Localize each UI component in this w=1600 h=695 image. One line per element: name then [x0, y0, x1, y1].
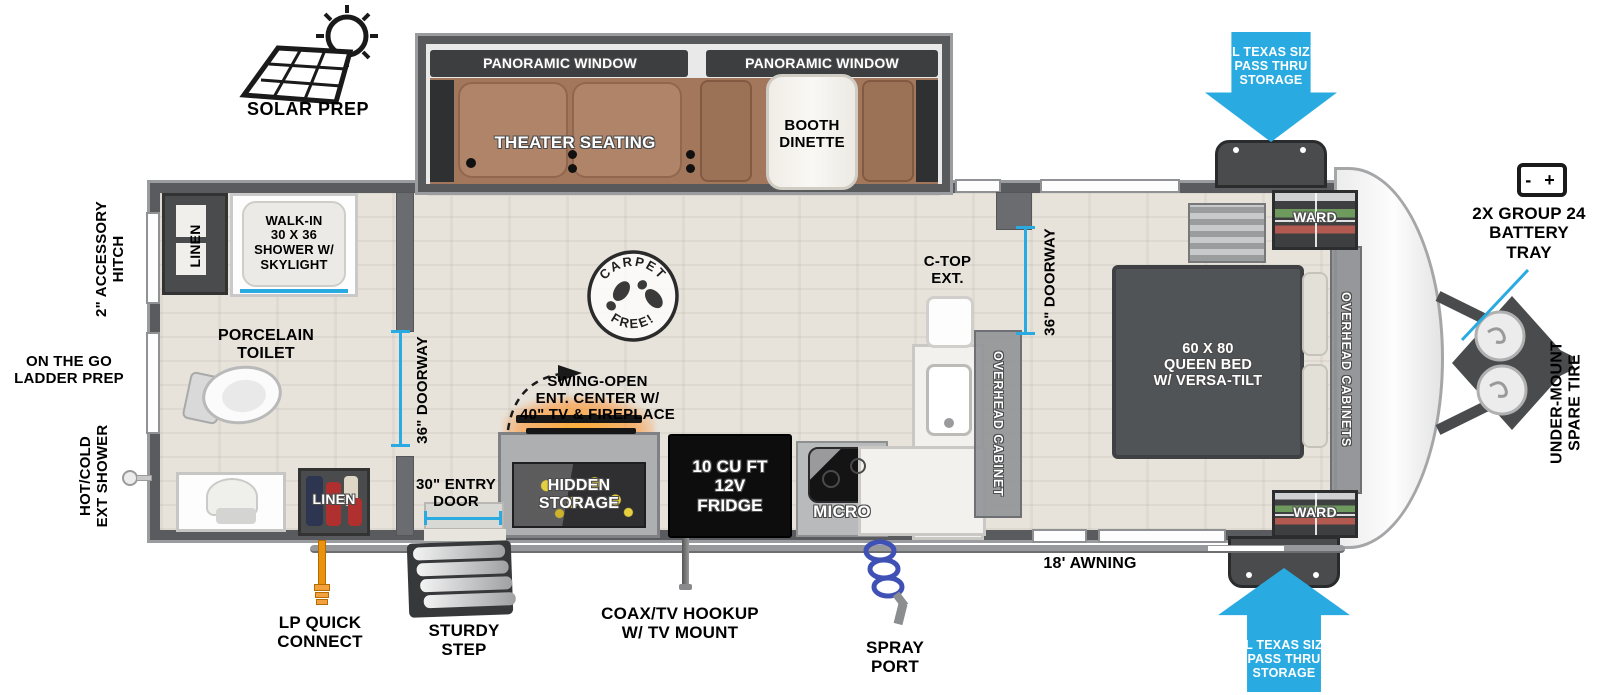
burner [822, 470, 840, 488]
ext-shower-label: HOT/COLD EXT SHOWER [73, 406, 117, 546]
bedroom-overhead-cabinets: OVERHEAD CABINETS [1330, 246, 1362, 494]
spray-port-coil [866, 542, 905, 624]
bed-dresser [1188, 203, 1266, 263]
floorplan-canvas: PANORAMIC WINDOW PANORAMIC WINDOW THEATE… [0, 0, 1600, 695]
shower-threshold [240, 289, 348, 293]
battery-tray-label: 2X GROUP 24 BATTERY TRAY [1458, 200, 1600, 266]
lp-connector [315, 592, 329, 598]
slideout-end-window [916, 80, 938, 182]
awning-label: 18' AWNING [1005, 553, 1175, 575]
step-tread [413, 544, 505, 560]
entry-door-label: 30" ENTRY DOOR [404, 474, 508, 514]
pass-thru-bottom-label: XL TEXAS SIZE PASS THRU STORAGE [1218, 630, 1350, 688]
booth-bench [700, 80, 752, 182]
coax-pole [682, 538, 689, 586]
step-tread [424, 592, 516, 608]
step-tread [416, 560, 508, 576]
bath-doorway-measure-line [399, 332, 402, 446]
under-mount-spare-tire-label: UNDER-MOUNT SPARE TIRE [1539, 298, 1594, 508]
micro-label: MICRO [798, 500, 886, 524]
vanity-base [216, 508, 256, 524]
kitchen-overhead-cabinet-label: OVERHEAD CABINET [991, 351, 1005, 497]
bath-doorway-label: 36" DOORWAY [408, 330, 438, 450]
entry-door-measure-line [424, 517, 502, 520]
booth-bench [862, 80, 914, 182]
battery-icon-text: - + [1525, 170, 1559, 190]
ladder-prep-label: ON THE GO LADDER PREP [0, 350, 138, 392]
rear-wall-window [146, 332, 160, 434]
battery-icon: - + [1517, 163, 1567, 197]
sturdy-step [407, 540, 514, 618]
awning-bar-segment [1208, 546, 1284, 551]
storage-box-latch [1246, 572, 1252, 578]
entry-door-measure-cap [424, 511, 427, 525]
solar-panel-icon [244, 5, 378, 102]
lp-connector [316, 599, 328, 605]
storage-box-latch [1313, 572, 1319, 578]
battery-leader-line [1462, 270, 1528, 340]
kitchen-top-window [955, 179, 1001, 193]
seat-button [568, 164, 577, 173]
pillow [1302, 272, 1328, 356]
storage-box-latch [1233, 147, 1239, 153]
kitchen-doorway-measure-cap [1016, 332, 1035, 335]
bedroom-top-window [1040, 179, 1180, 193]
bedroom-overhead-cabinets-label: OVERHEAD CABINETS [1339, 292, 1353, 447]
kitchen-doorway-measure-line [1024, 228, 1027, 334]
seat-button [568, 150, 577, 159]
kitchen-doorway-measure-cap [1016, 226, 1035, 229]
coax-hookup-label: COAX/TV HOOKUP W/ TV MOUNT [585, 602, 775, 644]
sturdy-step-label: STURDY STEP [412, 618, 516, 662]
kitchen-overhead-cabinet: OVERHEAD CABINET [974, 330, 1022, 518]
spray-port-label: SPRAY PORT [840, 634, 950, 680]
booth-dinette-label: BOOTH DINETTE [768, 114, 856, 156]
seat-button [686, 150, 695, 159]
entry-door-gap [424, 529, 506, 541]
storage-box-latch [1300, 147, 1306, 153]
lp-connector [314, 584, 330, 591]
bedroom-bottom-window [1098, 529, 1226, 543]
porcelain-toilet-label: PORCELAIN TOILET [196, 326, 336, 364]
burner [850, 458, 866, 474]
solar-prep-label: SOLAR PREP [228, 96, 388, 122]
kitchen-doorway-label: 36" DOORWAY [1037, 225, 1065, 340]
tv-bar [526, 428, 636, 434]
theater-seat [572, 82, 682, 178]
bath-wall-upper [396, 192, 414, 332]
wardrobe-bottom-label: WARD [1272, 500, 1358, 526]
panoramic-window-label-right: PANORAMIC WINDOW [714, 50, 930, 77]
ctop-extension [926, 296, 974, 348]
linen-bottom-label: LINEN [300, 488, 368, 512]
bedroom-bottom-window [1032, 529, 1087, 543]
entry-door-measure-cap [499, 511, 502, 525]
slideout-end-window [430, 80, 454, 182]
lp-pipe [318, 540, 326, 586]
swing-open-label: SWING-OPEN ENT. CENTER W/ 40" TV & FIREP… [505, 372, 690, 426]
panoramic-window-label-left: PANORAMIC WINDOW [450, 50, 670, 77]
fridge: 10 CU FT 12V FRIDGE [668, 434, 792, 538]
step-tread [420, 576, 512, 592]
wardrobe-top-label: WARD [1272, 205, 1358, 231]
pass-thru-storage-box-top [1215, 140, 1327, 188]
ext-shower-stem [136, 475, 152, 481]
queen-bed-label: 60 X 80 QUEEN BED W/ VERSA-TILT [1122, 338, 1294, 392]
propane-tank [1476, 312, 1524, 360]
ctop-extension-label: C-TOP EXT. [895, 252, 1000, 290]
linen-top-label: LINEN [183, 201, 209, 291]
kitchen-wall-stub [996, 192, 1032, 230]
rear-wall-window [146, 212, 160, 304]
coax-tip [679, 584, 692, 590]
lp-quick-connect-label: LP QUICK CONNECT [255, 610, 385, 654]
hidden-storage-label: HIDDEN STORAGE [514, 472, 644, 518]
walk-in-shower-label: WALK-IN 30 X 36 SHOWER W/ SKYLIGHT [232, 200, 356, 286]
pillow [1302, 364, 1328, 448]
pass-thru-top-label: XL TEXAS SIZE PASS THRU STORAGE [1205, 38, 1337, 94]
faucet [944, 418, 954, 428]
accessory-hitch-label: 2" ACCESSORY HITCH [88, 192, 134, 326]
propane-tank [1478, 366, 1526, 414]
seat-button [686, 164, 695, 173]
seat-button [466, 158, 476, 168]
